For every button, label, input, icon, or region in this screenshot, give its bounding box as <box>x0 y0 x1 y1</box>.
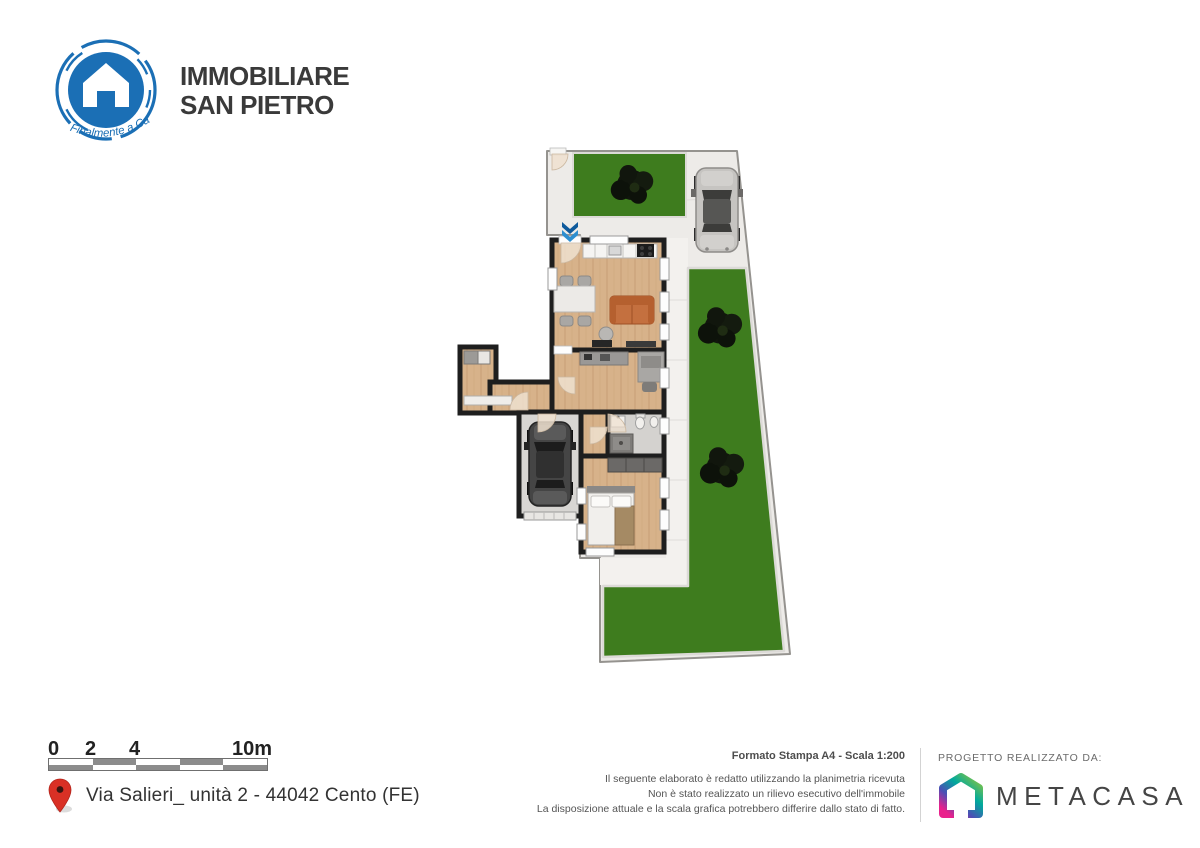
credits-block: PROGETTO REALIZZATO DA: METACASA <box>938 752 1189 820</box>
print-format-note: Formato Stampa A4 - Scala 1:200 <box>732 750 905 762</box>
walkway <box>666 238 688 586</box>
credits-logo-row: METACASA <box>938 772 1189 820</box>
driveway-car-icon <box>691 168 743 252</box>
scale-tick-10m: 10m <box>232 738 272 761</box>
bed <box>587 486 635 545</box>
address-row: Via Salieri_ unità 2 - 44042 Cento (FE) <box>48 778 420 814</box>
brand-name: IMMOBILIARE SAN PIETRO <box>180 62 349 120</box>
brand-logo-icon: Finalmente a Casa <box>48 36 170 152</box>
address-text: Via Salieri_ unità 2 - 44042 Cento (FE) <box>86 785 420 807</box>
toilet <box>636 417 645 429</box>
footer-divider <box>920 748 921 822</box>
disclaimer-line: Il seguente elaborato è redatto utilizza… <box>537 772 905 787</box>
kitchen-counter <box>583 244 657 258</box>
disclaimer-line: Non è stato realizzato un rilievo esecut… <box>537 787 905 802</box>
bidet <box>650 417 658 428</box>
scale-tick-0: 0 <box>48 738 59 761</box>
disclaimer-line: La disposizione attuale e la scala grafi… <box>537 802 905 817</box>
garage-door <box>524 512 576 520</box>
side-table <box>599 327 613 341</box>
garage-car-icon <box>524 422 576 506</box>
floor-plan <box>440 140 800 680</box>
wardrobe <box>608 458 662 472</box>
scale-tick-2: 2 <box>85 738 96 761</box>
brand-name-line1: IMMOBILIARE <box>180 62 349 91</box>
map-pin-icon <box>48 778 73 814</box>
scale-tick-4: 4 <box>129 738 140 761</box>
credits-label: PROGETTO REALIZZATO DA: <box>938 752 1189 764</box>
walkway-south <box>600 558 688 585</box>
scale-bar: 0 2 4 10m <box>48 738 268 771</box>
kitchen-sink <box>609 246 621 255</box>
brand-name-line2: SAN PIETRO <box>180 91 349 120</box>
scale-bar-labels: 0 2 4 10m <box>48 738 268 758</box>
metacasa-logo-icon <box>938 772 984 820</box>
sofa <box>610 296 654 324</box>
disclaimer: Il seguente elaborato è redatto utilizza… <box>537 772 905 818</box>
metacasa-wordmark: METACASA <box>996 781 1189 812</box>
brand-header: Finalmente a Casa IMMOBILIARE SAN PIETRO <box>48 36 349 152</box>
